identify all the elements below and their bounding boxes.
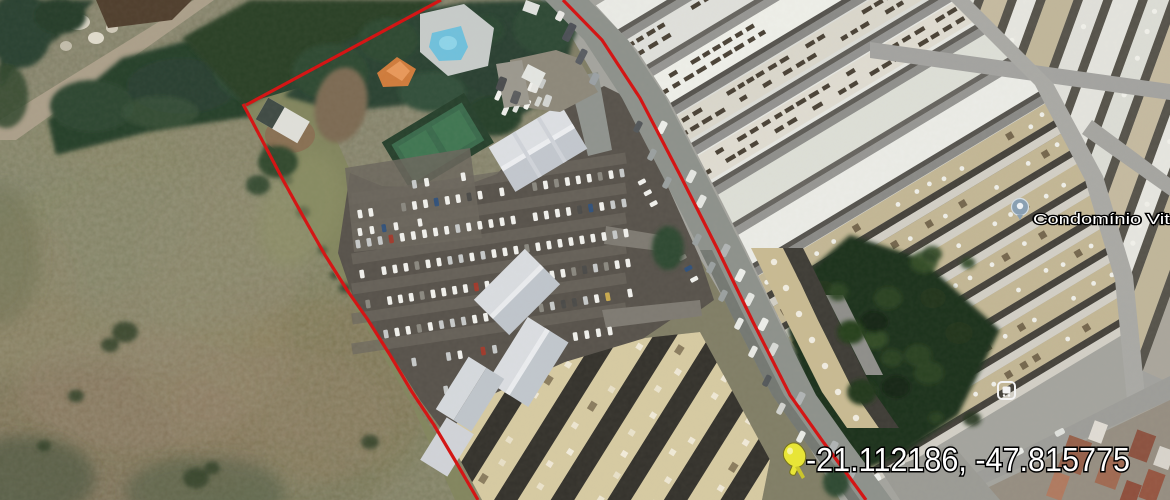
svg-text:Condomínio Vita: Condomínio Vita bbox=[1033, 211, 1170, 228]
svg-text:-21.112186, -47.815775: -21.112186, -47.815775 bbox=[806, 441, 1130, 478]
